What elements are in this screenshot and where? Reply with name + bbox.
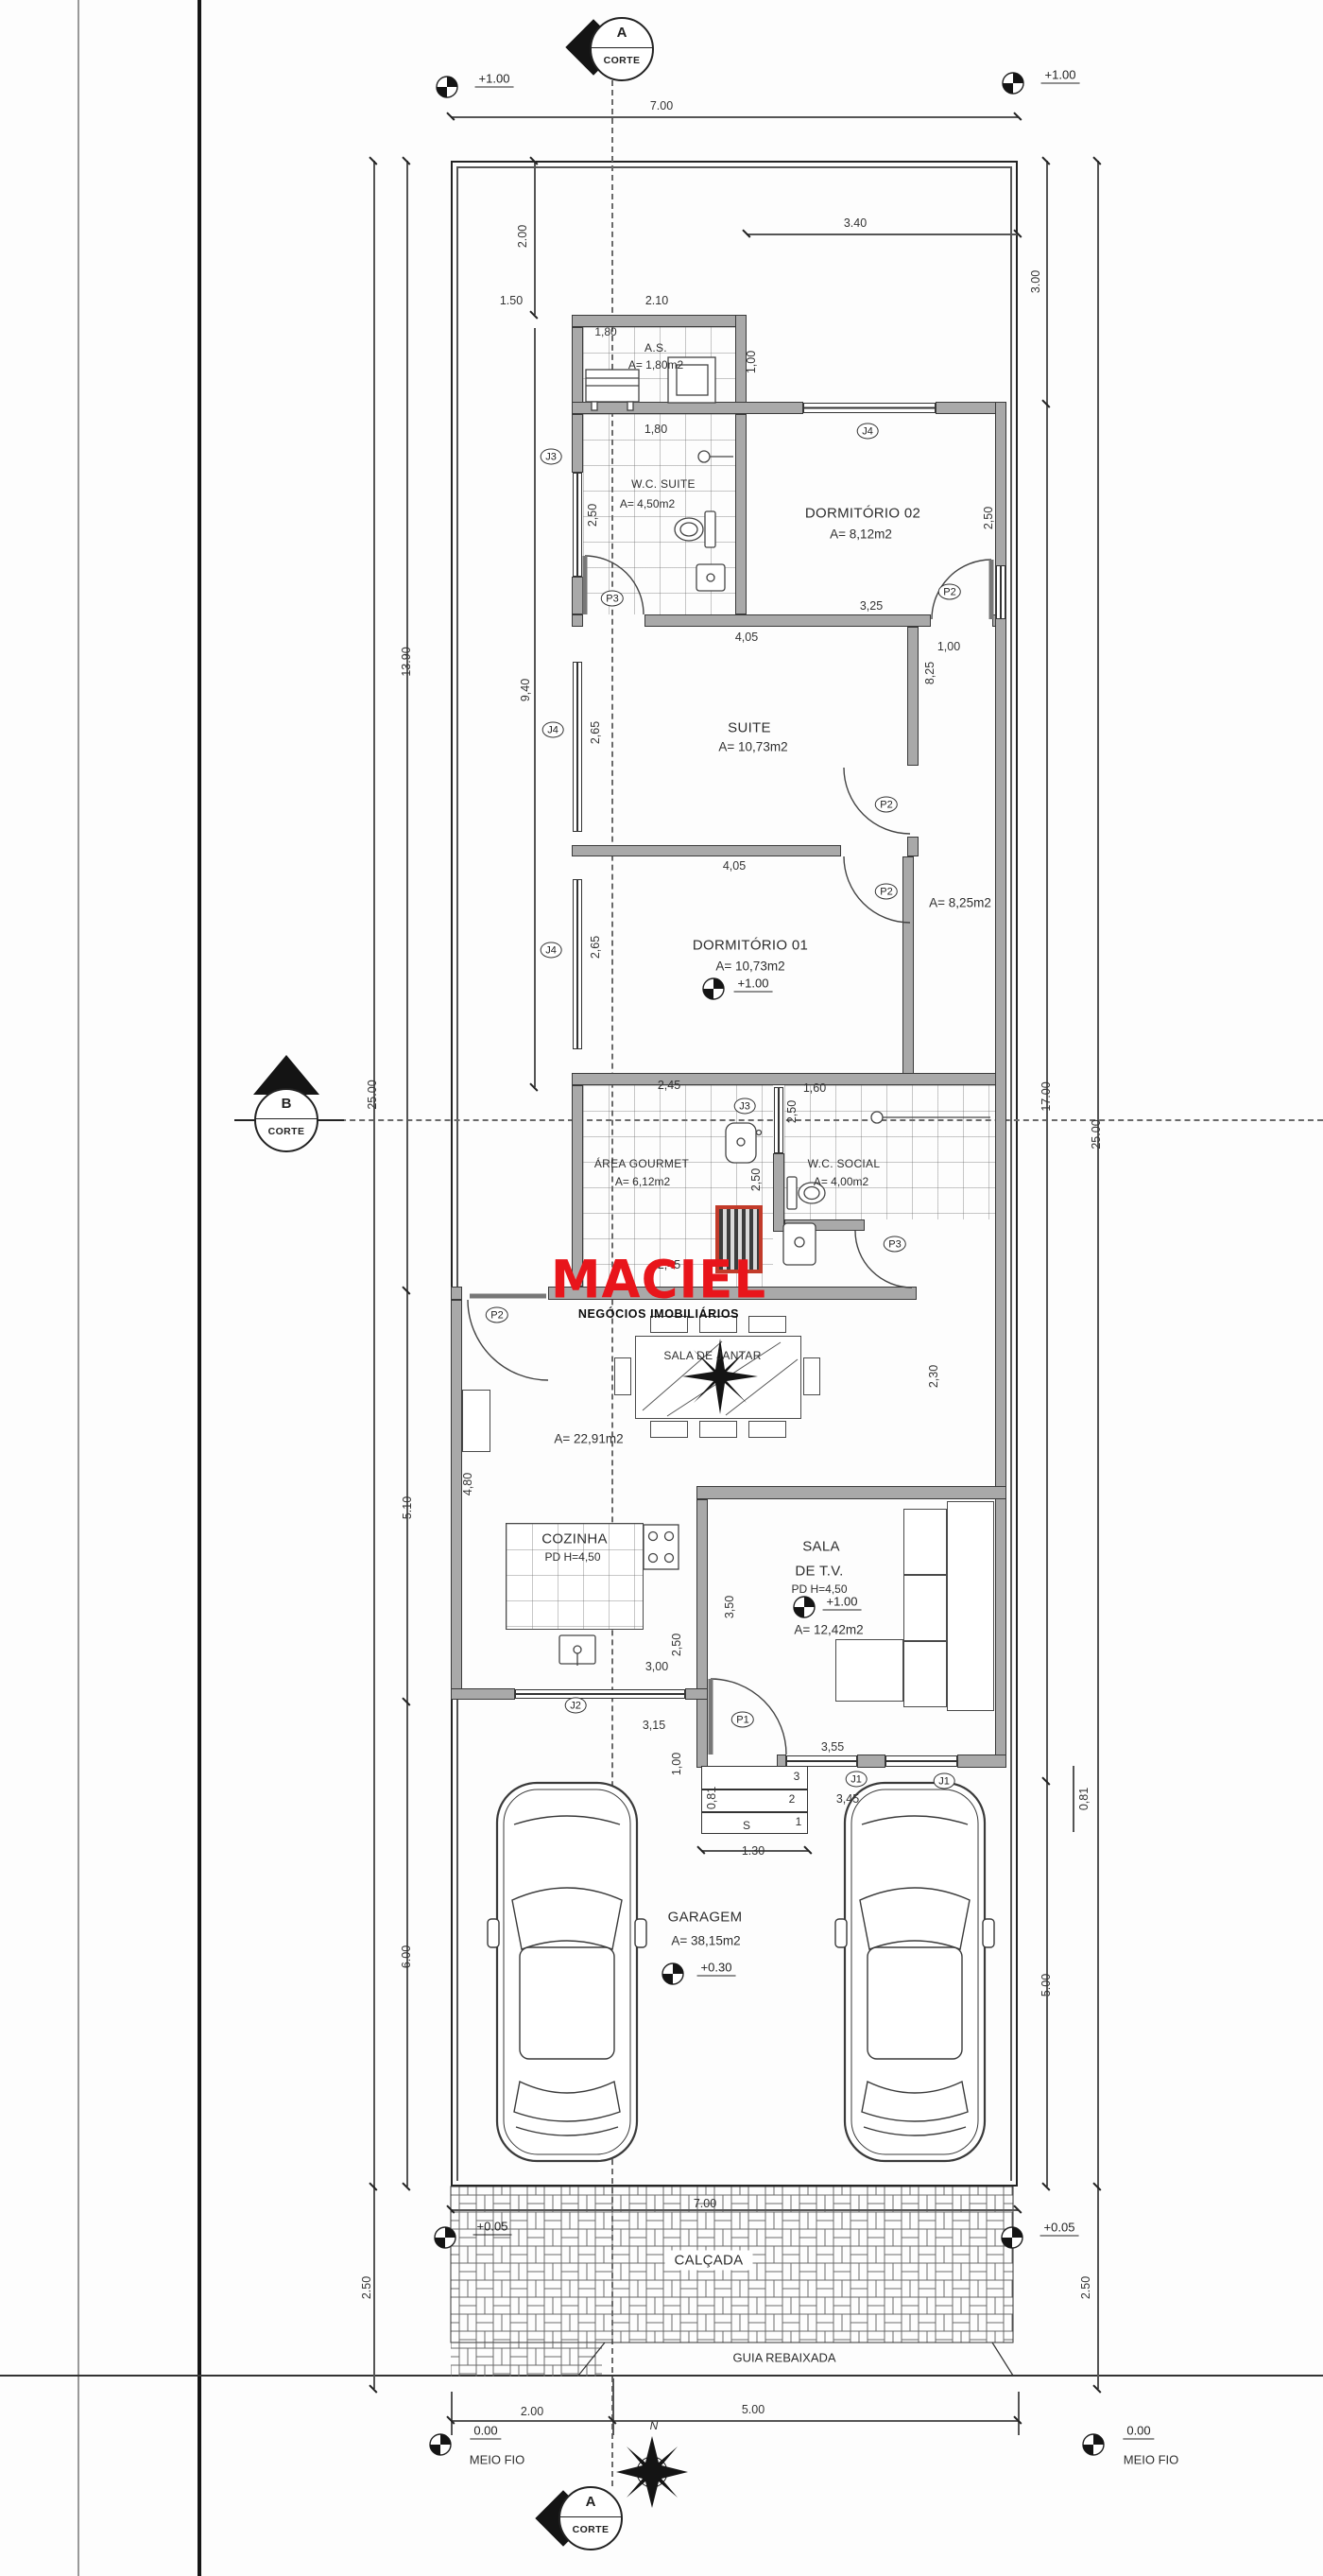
dim-line xyxy=(451,2209,1018,2211)
chair xyxy=(614,1357,631,1395)
curb-line-left xyxy=(198,0,201,2576)
room-area-gourmet: A= 6,12m2 xyxy=(615,1175,670,1188)
compass-north-label: N xyxy=(650,2419,659,2432)
stair-number: 2 xyxy=(789,1792,796,1806)
floor-plan: 7.00 1.50 2.10 3.40 2.00 3.00 1,00 1,80 … xyxy=(0,0,1323,2576)
dim-label: 2.00 xyxy=(521,2405,543,2418)
room-area-hall: A= 8,25m2 xyxy=(929,896,991,910)
room-area-dorm2: A= 8,12m2 xyxy=(830,527,892,542)
logo-text: MACIEL xyxy=(551,1254,766,1306)
dim-ext xyxy=(1018,2392,1020,2435)
tiles-wc-suite xyxy=(583,414,735,614)
wall xyxy=(572,402,803,414)
maciel-logo: MACIEL NEGÓCIOS IMOBILIÁRIOS xyxy=(551,1255,766,1321)
dim-label: 4,80 xyxy=(461,1473,474,1495)
dim-line xyxy=(747,233,1018,235)
dim-label: 3.00 xyxy=(1029,270,1042,293)
section-letter: A xyxy=(560,2488,621,2517)
level-label: +0.30 xyxy=(697,1961,736,1977)
tag-j1: J1 xyxy=(934,1772,955,1789)
dim-label: 0,81 xyxy=(1077,1788,1091,1810)
wall xyxy=(735,414,747,614)
room-label-dorm2: DORMITÓRIO 02 xyxy=(805,506,920,522)
wall xyxy=(696,1486,1006,1499)
level-label: +1.00 xyxy=(475,72,514,88)
dim-label: 3,45 xyxy=(836,1792,859,1806)
lot-front-line xyxy=(451,2185,1018,2187)
dim-label: 3,50 xyxy=(723,1596,736,1618)
dim-label: 1,80 xyxy=(594,325,616,338)
level-sublabel: MEIO FIO xyxy=(470,2453,525,2467)
room-area-jantar: A= 22,91m2 xyxy=(554,1432,623,1446)
room-label-as: A.S. xyxy=(644,341,667,354)
dim-label: 1,80 xyxy=(644,423,667,436)
level-sublabel: MEIO FIO xyxy=(1124,2453,1179,2467)
chair xyxy=(748,1421,786,1438)
dim-line xyxy=(373,161,375,2389)
dim-line xyxy=(1073,1766,1074,1832)
dim-label: 2,50 xyxy=(586,504,599,527)
dim-label: 4,05 xyxy=(723,859,746,873)
wall xyxy=(572,614,583,627)
dim-label: 1.50 xyxy=(500,294,523,307)
room-label-wc-suite: W.C. SUITE xyxy=(631,477,696,491)
sofa-seat xyxy=(903,1641,947,1707)
room-label-dorm1: DORMITÓRIO 01 xyxy=(693,938,808,954)
room-label-gourmet: ÁREA GOURMET xyxy=(594,1157,689,1170)
street-line-left xyxy=(77,0,79,2576)
room-area-garagem: A= 38,15m2 xyxy=(671,1934,740,1948)
tag-p2: P2 xyxy=(875,796,898,812)
wall xyxy=(572,1073,1006,1085)
dim-label: 5.00 xyxy=(1039,1974,1053,1997)
dim-label: 2.10 xyxy=(645,294,668,307)
dim-line xyxy=(534,161,536,315)
tag-j4: J4 xyxy=(542,721,564,737)
dim-label: 25.00 xyxy=(1090,1119,1103,1149)
level-label: +1.00 xyxy=(823,1595,862,1611)
section-marker-a-bottom: A CORTE xyxy=(558,2486,623,2550)
room-label-cozinha: COZINHA xyxy=(541,1531,608,1547)
sideboard xyxy=(462,1390,490,1452)
dim-label: 0,81 xyxy=(705,1787,718,1809)
wall xyxy=(572,414,583,473)
tiles-wc-social xyxy=(784,1085,995,1219)
dim-label: 2,50 xyxy=(670,1634,683,1656)
window-j4-dorm2-back xyxy=(803,403,936,413)
room-area-dorm1: A= 10,73m2 xyxy=(715,960,784,974)
room-label-tv-1: SALA xyxy=(802,1539,840,1555)
north-star-icon xyxy=(616,2436,688,2508)
dim-label: 7.00 xyxy=(650,99,673,112)
room-area-tv: A= 12,42m2 xyxy=(794,1623,863,1637)
dim-line xyxy=(1046,161,1048,2187)
wall xyxy=(451,1688,515,1700)
level-label: +1.00 xyxy=(734,977,773,993)
section-word: CORTE xyxy=(604,48,641,73)
section-marker-a-top: A CORTE xyxy=(590,17,654,81)
tag-p2: P2 xyxy=(486,1306,508,1323)
tag-j4: J4 xyxy=(857,423,879,439)
lot-boundary-left-inner xyxy=(456,166,458,2181)
wall xyxy=(572,577,583,614)
chair xyxy=(803,1357,820,1395)
level-label: +1.00 xyxy=(1041,68,1080,84)
wall xyxy=(784,1219,865,1231)
wall xyxy=(644,614,931,627)
dim-label: 13.90 xyxy=(400,647,413,676)
stair-number: 3 xyxy=(794,1770,800,1783)
wall xyxy=(773,1153,784,1232)
dim-line xyxy=(1097,161,1099,2389)
dim-label: 1,00 xyxy=(745,351,758,373)
car-icon xyxy=(835,1783,994,2161)
tag-j1: J1 xyxy=(846,1771,868,1787)
wall xyxy=(857,1755,885,1768)
dim-label: 5.00 xyxy=(742,2403,765,2416)
wall xyxy=(572,845,841,856)
dim-line xyxy=(451,2420,1018,2422)
dim-label: 2.00 xyxy=(516,225,529,248)
sofa-chaise xyxy=(835,1639,903,1702)
window-j2-cozinha xyxy=(515,1689,685,1699)
tag-p3: P3 xyxy=(884,1236,906,1252)
room-area-wc-suite: A= 4,50m2 xyxy=(620,497,675,510)
dim-label: 2,65 xyxy=(589,936,602,959)
wall xyxy=(907,837,919,856)
room-label-jantar: SALA DE JANTAR xyxy=(663,1349,761,1362)
lot-boundary-right-inner xyxy=(1010,166,1012,2181)
dim-label: 7.00 xyxy=(694,2197,716,2210)
dim-ext xyxy=(451,2392,453,2435)
lot-boundary-right xyxy=(1016,161,1018,2187)
room-area-suite: A= 10,73m2 xyxy=(718,740,787,754)
dim-label: 4,05 xyxy=(735,631,758,644)
dim-label: 25.00 xyxy=(366,1080,379,1109)
dim-label: 3,00 xyxy=(645,1660,668,1673)
room-area-wc-social: A= 4,00m2 xyxy=(814,1175,868,1188)
dim-label: 2,45 xyxy=(658,1079,680,1092)
tag-j3: J3 xyxy=(541,448,562,464)
dim-label: 3,25 xyxy=(860,599,883,613)
wall xyxy=(696,1499,708,1768)
dim-label: 3.40 xyxy=(844,216,867,230)
dim-label: 17.00 xyxy=(1039,1081,1053,1111)
dim-line xyxy=(451,116,1018,118)
tag-j3: J3 xyxy=(734,1098,756,1114)
wall xyxy=(902,856,914,1085)
dim-label: 2.50 xyxy=(360,2276,373,2299)
dim-ext xyxy=(612,2378,614,2435)
dim-label: 2,65 xyxy=(589,721,602,744)
level-label: +0.05 xyxy=(473,2220,512,2236)
dim-label: 9,40 xyxy=(519,679,532,701)
room-label-garagem: GARAGEM xyxy=(668,1910,743,1926)
dim-label: 3,15 xyxy=(643,1719,665,1732)
dim-label: 2.50 xyxy=(1079,2276,1092,2299)
room-label-suite: SUITE xyxy=(728,720,771,736)
lot-boundary-left xyxy=(451,161,453,2187)
dim-label: 5.10 xyxy=(401,1496,414,1519)
dim-label: 1,00 xyxy=(937,640,960,653)
level-label: 0.00 xyxy=(1123,2424,1154,2440)
lot-boundary-top-inner xyxy=(456,166,1012,168)
room-area-as: A= 1,80m2 xyxy=(628,358,683,372)
section-word: CORTE xyxy=(573,2517,610,2542)
sofa-back xyxy=(947,1501,994,1711)
tag-j2: J2 xyxy=(565,1697,587,1713)
wall xyxy=(451,1287,462,1300)
dim-label: 1,00 xyxy=(670,1753,683,1775)
dim-label: 3,55 xyxy=(821,1740,844,1754)
room-pd-cozinha: PD H=4,50 xyxy=(544,1550,600,1564)
dim-label: 2,50 xyxy=(982,507,995,529)
room-label-calcada: CALÇADA xyxy=(665,2251,753,2271)
section-word: CORTE xyxy=(268,1119,305,1144)
chair xyxy=(699,1421,737,1438)
chair xyxy=(650,1421,688,1438)
dim-label: 1,60 xyxy=(803,1081,826,1095)
section-letter: A xyxy=(592,19,652,48)
window-j4-suite xyxy=(573,662,582,832)
window-j1-right xyxy=(885,1755,957,1767)
stair-up-label: S xyxy=(743,1819,750,1832)
room-label-tv-2: DE T.V. xyxy=(795,1564,843,1580)
sidewalk-paving xyxy=(451,2187,1013,2377)
dim-label: 8,25 xyxy=(923,662,936,684)
room-label-guia: GUIA REBAIXADA xyxy=(732,2351,835,2365)
tag-p1: P1 xyxy=(731,1711,754,1727)
dim-label: 2,50 xyxy=(749,1168,763,1191)
step-line xyxy=(701,1811,808,1813)
window-dorm2-side xyxy=(996,565,1005,619)
window-j4-dorm1 xyxy=(573,879,582,1049)
dim-label: 2,50 xyxy=(785,1100,799,1123)
wall xyxy=(957,1755,1006,1768)
level-label: 0.00 xyxy=(470,2424,501,2440)
window-j3-gourmet xyxy=(774,1087,783,1153)
tag-p2: P2 xyxy=(938,583,961,599)
tag-j4: J4 xyxy=(541,942,562,958)
car-icon xyxy=(488,1783,646,2161)
dim-label: 1.30 xyxy=(742,1844,765,1858)
room-label-wc-social: W.C. SOCIAL xyxy=(808,1157,881,1170)
wall xyxy=(685,1688,708,1700)
stair-number: 1 xyxy=(796,1815,802,1828)
dim-label: 6.00 xyxy=(400,1945,413,1968)
wall xyxy=(451,1300,462,1700)
dim-label: 2,30 xyxy=(927,1365,940,1388)
dim-line xyxy=(406,161,408,2187)
section-marker-b: B CORTE xyxy=(254,1088,318,1152)
level-label: +0.05 xyxy=(1040,2221,1079,2237)
section-letter: B xyxy=(256,1090,317,1119)
tag-p2: P2 xyxy=(875,883,898,899)
window-j3-wc-suite xyxy=(573,473,582,577)
dim-line xyxy=(534,328,536,1087)
sofa-seat xyxy=(903,1509,947,1575)
wall xyxy=(907,627,919,766)
sofa-seat xyxy=(903,1575,947,1641)
street-line-bottom xyxy=(0,2375,1323,2377)
